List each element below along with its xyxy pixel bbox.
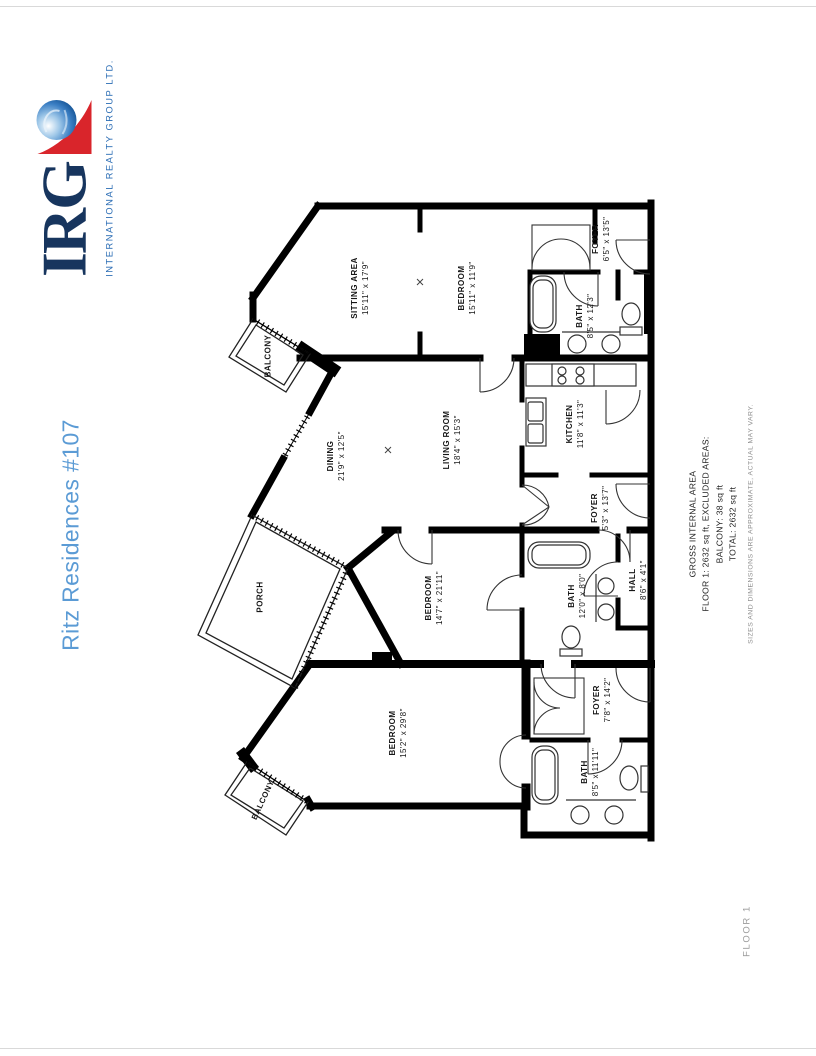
- room-label-balcony-top: BALCONY: [262, 335, 273, 378]
- room-label-hall: HALL8'6" x 4'1": [627, 560, 649, 600]
- kitchen-sink-icon: [528, 402, 543, 421]
- room-label-dining: DINING21'9" x 12'5": [325, 431, 347, 481]
- toilet-icon: [622, 303, 640, 325]
- room-label-bath-bottom: BATH8'5" x 11'11": [579, 748, 601, 797]
- sink-icon: [605, 806, 623, 824]
- room-label-living-room: LIVING ROOM18'4" x 15'3": [441, 411, 463, 470]
- floor-plan-page: IRG INT: [0, 0, 816, 1056]
- room-label-kitchen: KITCHEN11'8" x 11'3": [564, 400, 586, 449]
- balcony-porch-outlines: [198, 319, 348, 835]
- room-label-porch: PORCH: [254, 581, 265, 612]
- room-label-sitting-area: SITTING AREA15'11" x 17'9": [349, 257, 371, 319]
- room-label-foyer-bottom: FOYER7'8" x 14'2": [591, 678, 613, 723]
- sink-icon: [602, 335, 620, 353]
- floor-plan-drawing: [0, 0, 816, 1056]
- room-label-foyer-entry: FOYER6'5" x 13'5": [590, 217, 612, 262]
- room-label-bedroom-bottom: BEDROOM15'2" x 29'8": [387, 708, 409, 758]
- sink-icon: [598, 578, 614, 594]
- room-label-foyer-mid: FOYER5'3" x 13'7": [589, 486, 611, 531]
- room-label-bedroom-mid: BEDROOM14'7" x 21'11": [423, 571, 445, 625]
- sink-icon: [571, 806, 589, 824]
- toilet-icon: [620, 766, 638, 790]
- room-label-bedroom-top: BEDROOM15'11" x 11'9": [456, 261, 478, 314]
- sink-icon: [598, 604, 614, 620]
- room-label-bath-mid: BATH12'0" x 8'0": [566, 574, 588, 619]
- room-label-bath-top: BATH8'5" x 12'3": [574, 294, 596, 339]
- toilet-icon: [562, 626, 580, 648]
- x-markers: [385, 279, 423, 453]
